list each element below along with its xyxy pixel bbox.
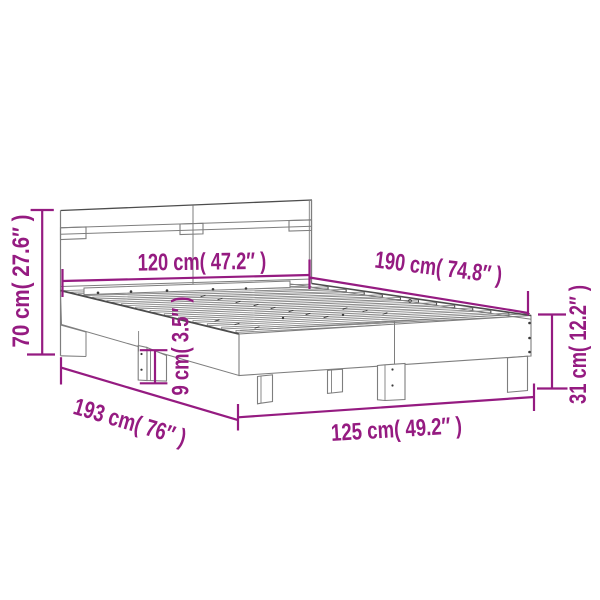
svg-text:31 cm( 12.2″ ): 31 cm( 12.2″ ): [565, 285, 592, 404]
svg-text:70 cm( 27.6″ ): 70 cm( 27.6″ ): [8, 215, 35, 348]
svg-text:9 cm( 3.5″ ): 9 cm( 3.5″ ): [168, 297, 195, 396]
svg-text:120 cm( 47.2″ ): 120 cm( 47.2″ ): [138, 248, 267, 277]
